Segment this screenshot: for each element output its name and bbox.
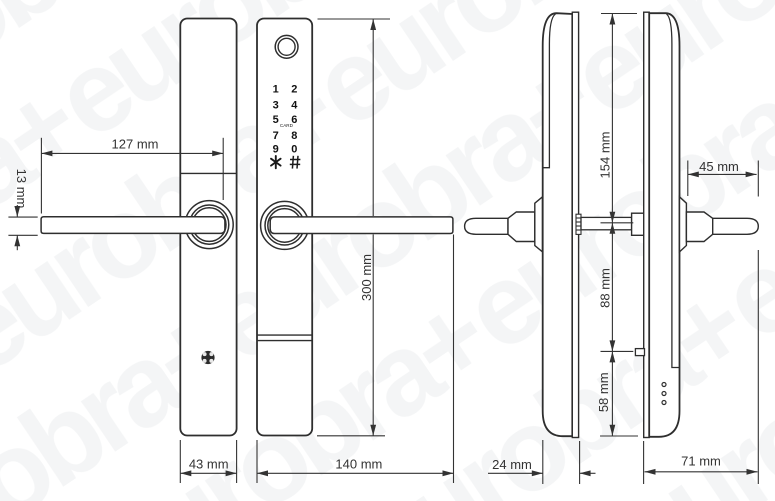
svg-text:71 mm: 71 mm [681,453,721,468]
svg-text:9: 9 [273,144,279,156]
svg-text:1: 1 [273,84,279,96]
svg-text:43 mm: 43 mm [189,456,229,471]
svg-text:5: 5 [273,114,279,126]
svg-text:300 mm: 300 mm [359,254,374,301]
svg-text:3: 3 [273,99,279,111]
svg-text:58 mm: 58 mm [596,372,611,412]
svg-text:24 mm: 24 mm [492,457,532,472]
svg-text:154 mm: 154 mm [598,132,613,179]
svg-text:8: 8 [291,130,297,142]
svg-text:7: 7 [273,130,279,142]
svg-text:CARD: CARD [280,123,294,128]
svg-text:2: 2 [291,84,297,96]
svg-text:88 mm: 88 mm [598,268,613,308]
svg-text:13 mm: 13 mm [14,169,29,209]
svg-text:127 mm: 127 mm [112,137,159,152]
svg-text:45 mm: 45 mm [699,159,739,174]
svg-text:140 mm: 140 mm [335,456,382,471]
svg-text:0: 0 [291,144,297,156]
svg-text:4: 4 [291,99,298,111]
